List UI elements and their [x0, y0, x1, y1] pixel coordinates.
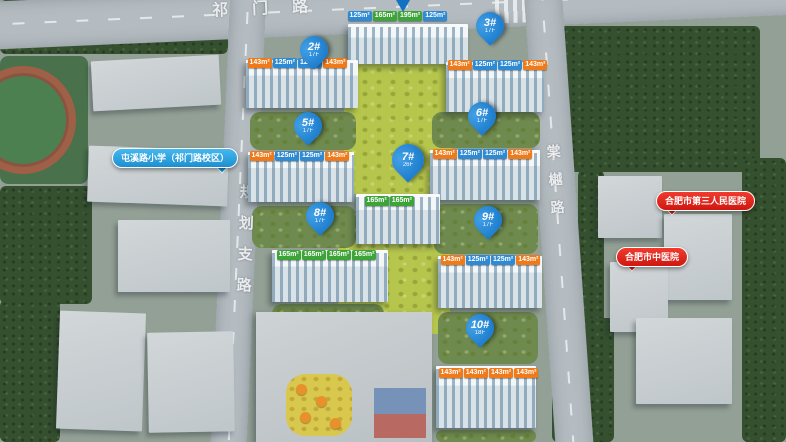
- unit-size-label: 125m²: [275, 151, 299, 161]
- unit-labels-tower-6: 143m² 125m² 125m² 143m²: [432, 149, 533, 159]
- unit-labels-tower-8: 165m² 165m² 165m² 165m²: [276, 250, 377, 260]
- unit-size-label: 143m²: [439, 368, 463, 378]
- pin-floors: 17F: [303, 128, 313, 135]
- courtyard-green: [252, 206, 356, 248]
- pin-building-8[interactable]: 8#17F: [300, 196, 340, 236]
- pin-building-5[interactable]: 5#17F: [288, 106, 328, 146]
- courtyard-green: [436, 430, 536, 442]
- unit-size-label: 143m²: [325, 151, 349, 161]
- unit-size-label: 165m²: [327, 250, 351, 260]
- unit-size-label: 143m²: [516, 255, 540, 265]
- unit-size-label: 143m²: [448, 60, 472, 70]
- unit-size-label: 143m²: [250, 151, 274, 161]
- unit-labels-tower-10: 143m² 143m² 143m² 143m²: [438, 368, 539, 378]
- pin-label: 8#: [314, 208, 326, 218]
- unit-size-label: 125m²: [348, 11, 372, 21]
- pin-label: 6#: [476, 108, 488, 118]
- trees-top-right: [560, 26, 760, 172]
- unit-labels-tower-1: 125m² 165m² 195m² 125m²: [347, 11, 448, 21]
- pin-floors: 17F: [315, 218, 325, 225]
- unit-size-label: 165m²: [352, 250, 376, 260]
- unit-size-label: 165m²: [373, 11, 397, 21]
- pin-floors: 17F: [485, 28, 495, 35]
- poi-hospital-third-label[interactable]: 合肥市第三人民医院: [656, 191, 755, 211]
- unit-size-label: 195m²: [398, 11, 422, 21]
- unit-size-label: 143m²: [489, 368, 513, 378]
- unit-size-label: 143m²: [464, 368, 488, 378]
- unit-size-label: 125m²: [300, 151, 324, 161]
- unit-size-label: 125m²: [483, 149, 507, 159]
- unit-size-label: 165m²: [277, 250, 301, 260]
- kindergarten-court-red: [374, 414, 426, 438]
- playground-tree-dot: [316, 396, 327, 407]
- playground-tree-dot: [330, 418, 341, 429]
- pin-label: 7#: [402, 152, 414, 162]
- poi-school-label[interactable]: 屯溪路小学（祁门路校区）: [112, 148, 238, 168]
- pin-building-2[interactable]: 2#17F: [294, 30, 334, 70]
- school-building: [118, 220, 230, 292]
- pin-label: 3#: [484, 18, 496, 28]
- unit-size-label: 165m²: [365, 196, 389, 206]
- pin-building-6[interactable]: 6#17F: [462, 96, 502, 136]
- pin-floors: 26F: [403, 162, 413, 169]
- trees-bottom-left: [0, 300, 60, 442]
- pin-label: 10#: [471, 320, 489, 330]
- pin-floors: 17F: [483, 222, 493, 229]
- unit-size-label: 125m²: [491, 255, 515, 265]
- unit-labels-tower-7: 165m² 165m²: [364, 196, 414, 206]
- trees-left-mid: [0, 186, 92, 304]
- hospital-building: [598, 176, 662, 238]
- playground-tree-dot: [300, 412, 311, 423]
- unit-size-label: 125m²: [473, 60, 497, 70]
- pin-label: 9#: [482, 212, 494, 222]
- unit-size-label: 165m²: [302, 250, 326, 260]
- unit-size-label: 143m²: [441, 255, 465, 265]
- unit-size-label: 165m²: [390, 196, 414, 206]
- pin-building-10[interactable]: 10#18F: [460, 308, 500, 348]
- unit-size-label: 143m²: [248, 58, 272, 68]
- unit-size-label: 125m²: [498, 60, 522, 70]
- road-name-left: 规划支路: [232, 184, 257, 309]
- residential-tower-1: [348, 24, 468, 64]
- pin-label: 2#: [308, 42, 320, 52]
- unit-size-label: 143m²: [508, 149, 532, 159]
- unit-size-label: 125m²: [466, 255, 490, 265]
- unit-size-label: 125m²: [273, 58, 297, 68]
- neighbor-building: [56, 311, 146, 432]
- unit-size-label: 125m²: [458, 149, 482, 159]
- school-building: [91, 55, 221, 112]
- poi-hospital-tcm-label[interactable]: 合肥市中医院: [616, 247, 688, 267]
- kindergarten-court-blue: [374, 388, 426, 414]
- pin-building-7[interactable]: 7#26F: [385, 137, 430, 182]
- unit-labels-tower-3: 143m² 125m² 125m² 143m²: [447, 60, 548, 70]
- pin-floors: 17F: [309, 52, 319, 59]
- pin-building-3[interactable]: 3#17F: [470, 6, 510, 46]
- pin-floors: 17F: [477, 118, 487, 125]
- unit-size-label: 125m²: [423, 11, 447, 21]
- pin-label: 5#: [302, 118, 314, 128]
- unit-labels-tower-5: 143m² 125m² 125m² 143m²: [249, 151, 350, 161]
- pin-floors: 18F: [475, 330, 485, 337]
- playground-tree-dot: [296, 384, 307, 395]
- unit-size-label: 143m²: [523, 60, 547, 70]
- hospital-building: [636, 318, 732, 404]
- masterplan-aerial-map: 祁门路 规划支路 棠樾路 125m² 165m² 195m² 125: [0, 0, 786, 442]
- pin-building-1-cutoff[interactable]: [396, 0, 410, 12]
- pin-building-9[interactable]: 9#17F: [468, 200, 508, 240]
- unit-labels-tower-9: 143m² 125m² 125m² 143m²: [440, 255, 541, 265]
- unit-size-label: 143m²: [433, 149, 457, 159]
- unit-labels-tower-2: 143m² 125m² 125m² 143m²: [247, 58, 348, 68]
- unit-size-label: 143m²: [514, 368, 538, 378]
- neighbor-building: [147, 331, 235, 432]
